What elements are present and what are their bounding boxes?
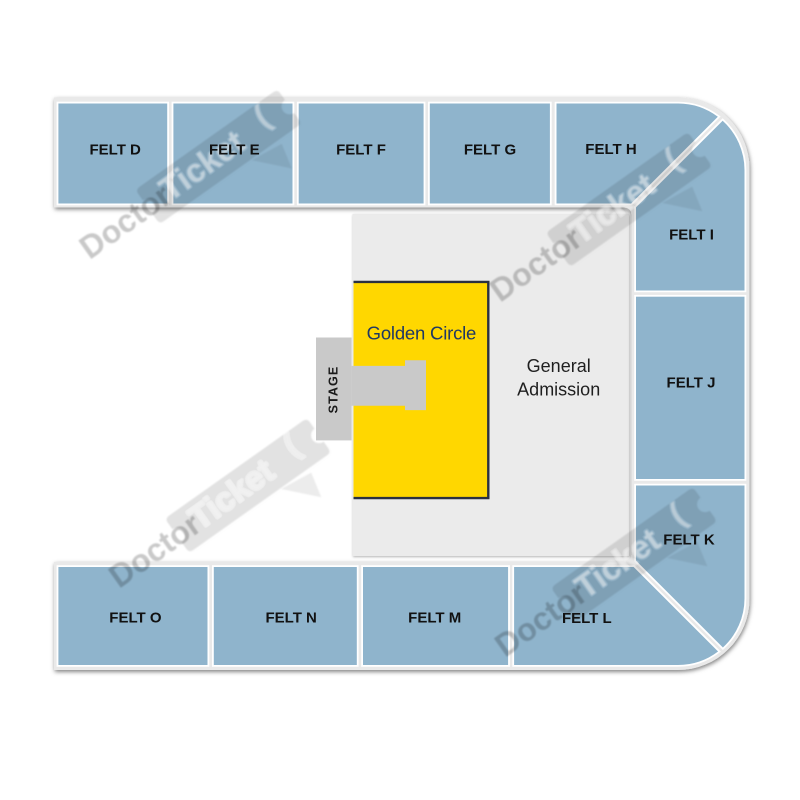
svg-text:FELT J: FELT J (667, 374, 716, 391)
svg-text:General: General (527, 356, 591, 376)
svg-text:FELT G: FELT G (464, 141, 516, 158)
svg-text:STAGE: STAGE (326, 366, 340, 414)
svg-text:FELT M: FELT M (408, 610, 461, 627)
svg-text:FELT L: FELT L (562, 610, 612, 627)
svg-text:FELT E: FELT E (209, 141, 260, 158)
svg-text:FELT N: FELT N (266, 610, 317, 627)
svg-text:FELT I: FELT I (669, 226, 714, 243)
svg-text:FELT F: FELT F (336, 141, 386, 158)
svg-text:Admission: Admission (517, 380, 600, 400)
svg-text:FELT O: FELT O (109, 610, 162, 627)
svg-text:FELT H: FELT H (585, 141, 636, 158)
svg-text:Golden Circle: Golden Circle (367, 322, 476, 343)
svg-text:FELT K: FELT K (663, 531, 715, 548)
svg-text:FELT D: FELT D (90, 141, 142, 158)
